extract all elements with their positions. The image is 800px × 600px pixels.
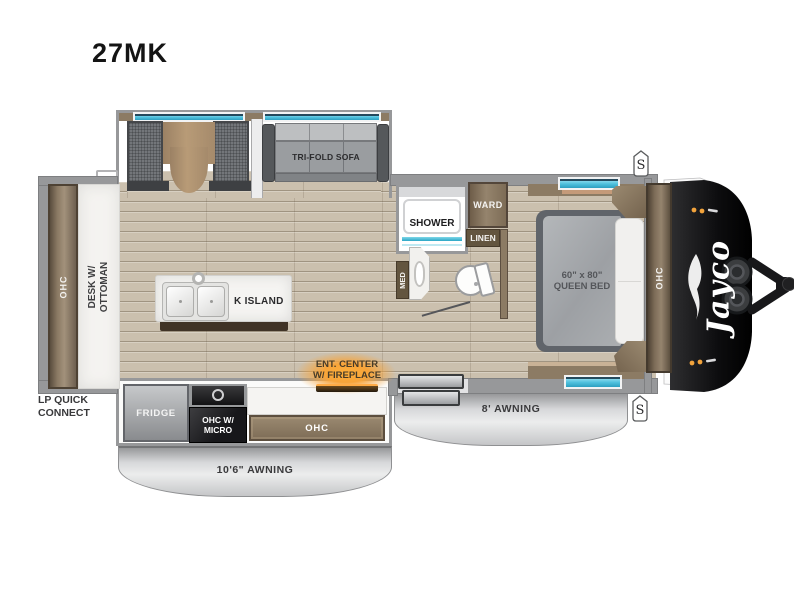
bed-pillows	[615, 218, 644, 344]
awning-main: 10'6" AWNING	[118, 446, 392, 497]
dinette-bench-base-left	[127, 181, 169, 191]
kitchen-island: K ISLAND	[155, 275, 292, 322]
sofa-arm-left	[262, 124, 275, 182]
island-sink-unit	[162, 282, 229, 321]
sofa-back	[275, 123, 377, 141]
rear-ohc-label: OHC	[58, 275, 68, 298]
ent-label-1: ENT. CENTER	[299, 359, 395, 370]
linen-cabinet: LINEN	[466, 229, 500, 247]
speaker-badge-bottom: S	[632, 395, 648, 422]
linen-label: LINEN	[470, 233, 496, 243]
ent-center-label: ENT. CENTER W/ FIREPLACE	[299, 359, 395, 381]
awning-main-label: 10'6" AWNING	[217, 464, 294, 496]
svg-text:S: S	[636, 403, 645, 418]
med-cabinet: MED	[396, 261, 409, 299]
kitchen-ohc: OHC	[249, 415, 385, 441]
fridge: FRIDGE	[123, 384, 189, 442]
pillow-seam	[618, 281, 641, 282]
floorplan-canvas: 27MK 10'6" AWNING 8' AWNING FRIDGE OHC W…	[0, 0, 800, 600]
desk-label-1: DESK W/	[87, 261, 99, 311]
shower-glass	[402, 237, 462, 241]
marker-light	[700, 209, 705, 214]
burner-icon	[212, 389, 224, 401]
marker-light	[698, 360, 703, 365]
lp-quick-connect: LP QUICK CONNECT	[38, 394, 90, 419]
fireplace-unit	[316, 384, 378, 392]
bath-vanity	[409, 247, 430, 300]
wardrobe: WARD	[468, 182, 508, 228]
lp-label-2: CONNECT	[38, 407, 90, 420]
lp-label-1: LP QUICK	[38, 394, 90, 407]
desk-ottoman: DESK W/ OTTOMAN	[78, 184, 120, 389]
hitch-ball	[783, 278, 795, 291]
sink-basin-right	[197, 286, 225, 317]
dinette-bench-right	[213, 121, 249, 189]
svg-text:S: S	[637, 158, 646, 173]
entry-step-1	[398, 374, 464, 389]
ohc-microwave: OHC W/ MICRO	[189, 407, 247, 443]
marker-light	[692, 208, 697, 213]
shower-label: SHOWER	[399, 218, 465, 229]
ent-label-2: W/ FIREPLACE	[299, 370, 395, 381]
bedroom-ohc: OHC	[646, 183, 672, 373]
ohc-micro-label-1: OHC W/	[202, 415, 234, 425]
shower-top-ledge	[399, 187, 465, 197]
speaker-badge-top: S	[633, 150, 649, 177]
fridge-label: FRIDGE	[136, 408, 176, 419]
rear-ohc: OHC	[48, 184, 78, 389]
queen-bed-mattress: 60" x 80" QUEEN BED	[543, 216, 621, 346]
dinette-bench-left	[127, 121, 163, 189]
bedroom-bottom-window	[564, 375, 622, 389]
sofa-front-edge	[275, 173, 377, 182]
range-cooktop	[189, 384, 247, 407]
desk-label-2: OTTOMAN	[99, 261, 111, 311]
island-label: K ISLAND	[234, 296, 284, 307]
shower: SHOWER	[396, 184, 468, 254]
brand-logo: Jayco	[702, 240, 737, 334]
vanity-sink	[414, 261, 425, 287]
bed-size-label: 60" x 80"	[554, 270, 610, 282]
med-label: MED	[398, 272, 407, 289]
bedroom-top-window	[558, 177, 620, 190]
sink-basin-left	[166, 286, 194, 317]
sofa-label: TRI-FOLD SOFA	[292, 152, 360, 162]
bed-name-label: QUEEN BED	[554, 281, 610, 293]
awning-door-label: 8' AWNING	[482, 403, 541, 445]
page-title: 27MK	[92, 38, 168, 69]
ohc-micro-label-2: MICRO	[204, 425, 232, 435]
sofa-arm-right	[377, 124, 389, 182]
wardrobe-label: WARD	[473, 200, 503, 210]
entry-step-2	[402, 390, 460, 406]
bedroom-ohc-label: OHC	[654, 267, 664, 290]
bedroom-top-sill	[562, 190, 616, 194]
marker-light	[690, 361, 695, 366]
shower-glass-2	[402, 244, 462, 246]
dinette-bench-base-right	[209, 181, 251, 191]
kitchen-ohc-label: OHC	[305, 423, 329, 434]
living-slideout: TRI-FOLD SOFA	[116, 110, 392, 198]
sofa-seat: TRI-FOLD SOFA	[275, 141, 377, 173]
sofa-window	[263, 112, 381, 122]
faucet-icon	[192, 272, 205, 285]
bath-wall-stub	[500, 229, 508, 319]
